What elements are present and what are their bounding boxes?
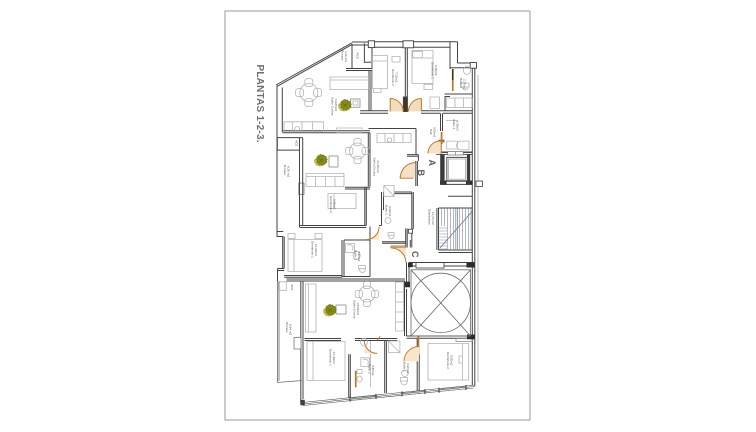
svg-text:Terraza: Terraza: [285, 322, 289, 333]
svg-text:3,30m2: 3,30m2: [456, 121, 460, 132]
svg-text:9,38m2: 9,38m2: [434, 65, 438, 76]
svg-text:Salón Cocina: Salón Cocina: [331, 97, 335, 116]
svg-text:Dormitorio 2: Dormitorio 2: [391, 69, 395, 86]
svg-text:Dormitorio 1: Dormitorio 1: [329, 349, 333, 366]
svg-text:Dormitorio 1: Dormitorio 1: [431, 62, 435, 79]
svg-text:Baño 1: Baño 1: [403, 362, 407, 372]
svg-text:PLANTAS 1-2-3.: PLANTAS 1-2-3.: [254, 65, 265, 143]
svg-text:Hall: Hall: [429, 129, 433, 135]
svg-text:C: C: [410, 251, 420, 258]
svg-text:7,02m2: 7,02m2: [395, 72, 399, 83]
svg-text:6,64 m2: 6,64 m2: [289, 324, 293, 335]
svg-text:Salón Cocina: Salón Cocina: [373, 158, 377, 177]
svg-text:11,72 m2: 11,72 m2: [431, 212, 435, 225]
svg-text:ACS: ACS: [290, 285, 294, 291]
svg-text:Baño 2: Baño 2: [459, 78, 463, 88]
svg-text:Dormitorio 1: Dormitorio 1: [311, 241, 315, 258]
svg-text:ACS: ACS: [356, 53, 360, 59]
svg-text:11,30m2: 11,30m2: [314, 244, 318, 256]
svg-text:Dormitorio 2: Dormitorio 2: [329, 196, 333, 213]
svg-text:11,30m2: 11,30m2: [332, 352, 336, 364]
svg-text:ACS: ACS: [295, 140, 299, 146]
svg-text:3,40m2: 3,40m2: [371, 365, 375, 376]
svg-text:3,06m2: 3,06m2: [433, 127, 437, 138]
svg-text:Distribuidor: Distribuidor: [428, 209, 432, 225]
svg-text:6,26 m2: 6,26 m2: [287, 166, 291, 177]
svg-text:Baño 1: Baño 1: [452, 120, 456, 130]
svg-text:9,50m2: 9,50m2: [450, 355, 454, 366]
svg-text:21,20m2: 21,20m2: [376, 161, 380, 173]
svg-text:19,20m2: 19,20m2: [334, 99, 338, 111]
svg-text:Terraza: Terraza: [341, 50, 345, 61]
svg-text:A: A: [427, 160, 437, 167]
svg-text:2,70m2: 2,70m2: [463, 79, 467, 90]
svg-text:Baño 2: Baño 2: [368, 364, 372, 374]
svg-text:Salón Cocina: Salón Cocina: [353, 300, 357, 319]
svg-text:3,40m2: 3,40m2: [357, 251, 361, 262]
svg-text:Baño 2: Baño 2: [354, 250, 358, 260]
svg-text:Dormitorio 2: Dormitorio 2: [446, 352, 450, 369]
svg-text:B: B: [416, 170, 426, 177]
svg-text:Terraza: Terraza: [283, 165, 287, 176]
svg-text:20,80m2: 20,80m2: [356, 303, 360, 315]
svg-text:9,86m2: 9,86m2: [333, 199, 337, 210]
svg-text:3,10m2: 3,10m2: [406, 363, 410, 374]
svg-text:Baño 1: Baño 1: [385, 205, 389, 215]
svg-text:3,06m2: 3,06m2: [388, 206, 392, 217]
svg-text:4,11 m2: 4,11 m2: [344, 51, 348, 62]
